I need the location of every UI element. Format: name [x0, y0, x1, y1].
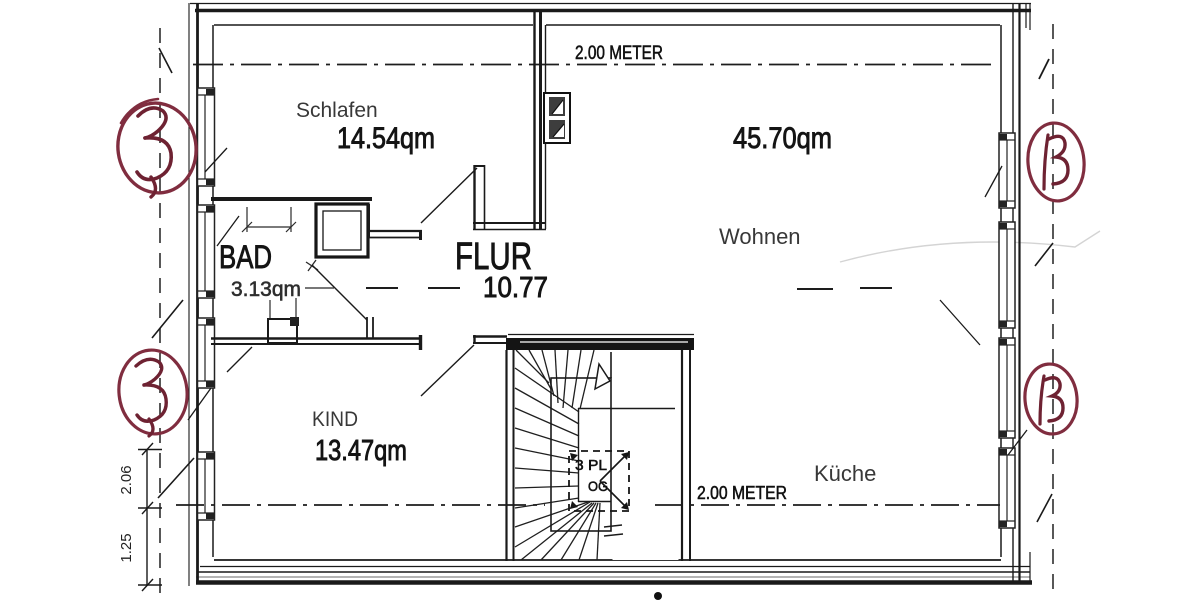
svg-text:3.13qm: 3.13qm [231, 278, 301, 301]
svg-text:Küche: Küche [814, 461, 876, 486]
svg-text:Wohnen: Wohnen [719, 224, 801, 249]
svg-text:13.47qm: 13.47qm [315, 435, 407, 467]
svg-text:2.06: 2.06 [118, 465, 135, 494]
svg-text:BAD: BAD [219, 239, 272, 275]
svg-text:10.77: 10.77 [483, 272, 548, 304]
svg-text:Schlafen: Schlafen [296, 99, 378, 122]
svg-text:2.00 METER: 2.00 METER [575, 43, 663, 64]
svg-text:OG: OG [588, 479, 608, 494]
svg-text:2.00 METER: 2.00 METER [697, 483, 787, 503]
svg-text:KIND: KIND [312, 408, 358, 431]
svg-text:45.70qm: 45.70qm [733, 122, 832, 155]
svg-text:3 PL: 3 PL [575, 457, 607, 474]
svg-text:1.25: 1.25 [118, 533, 135, 562]
svg-text:14.54qm: 14.54qm [337, 122, 435, 155]
